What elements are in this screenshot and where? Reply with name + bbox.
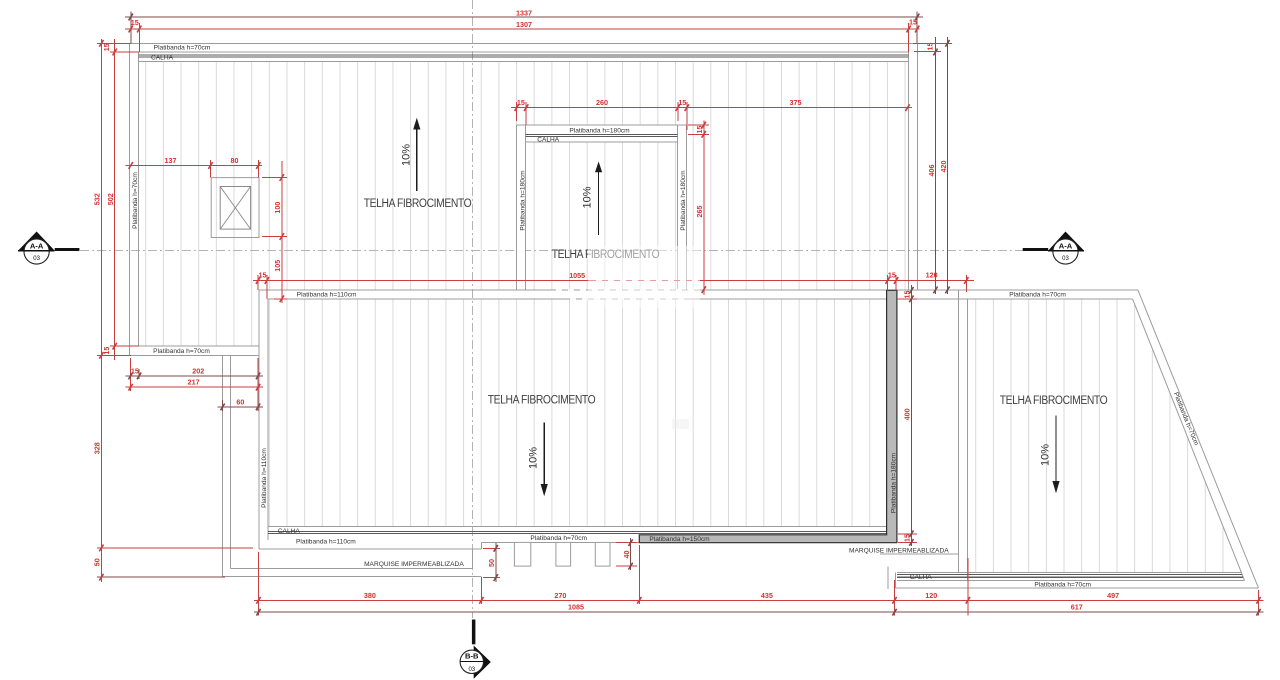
svg-text:40: 40: [622, 551, 631, 559]
svg-text:435: 435: [761, 591, 773, 600]
svg-text:375: 375: [790, 98, 802, 107]
svg-text:400: 400: [903, 408, 912, 420]
svg-text:15: 15: [102, 43, 111, 51]
svg-text:TELHA FIBROCIMENTO: TELHA FIBROCIMENTO: [1000, 395, 1108, 408]
svg-text:TELHA FIBROCIMENTO: TELHA FIBROCIMENTO: [488, 394, 596, 407]
svg-text:80: 80: [231, 156, 239, 165]
svg-text:03: 03: [33, 256, 40, 262]
svg-text:10%: 10%: [528, 447, 540, 469]
svg-text:10%: 10%: [1039, 444, 1051, 466]
svg-text:TELHA FIBROCIMENTO: TELHA FIBROCIMENTO: [364, 197, 472, 210]
svg-text:60: 60: [236, 397, 244, 406]
svg-text:328: 328: [93, 442, 102, 454]
svg-text:B-B: B-B: [465, 652, 479, 661]
svg-text:Platibanda h=150cm: Platibanda h=150cm: [649, 536, 710, 543]
svg-text:617: 617: [1071, 602, 1083, 611]
svg-text:10%: 10%: [401, 144, 413, 166]
svg-text:1307: 1307: [516, 20, 532, 29]
svg-text:270: 270: [554, 591, 566, 600]
svg-text:Platibanda h=70cm: Platibanda h=70cm: [530, 535, 587, 542]
svg-text:MARQUISE IMPERMEABLIZADA: MARQUISE IMPERMEABLIZADA: [849, 548, 949, 555]
svg-text:Platibanda h=70cm: Platibanda h=70cm: [153, 348, 210, 355]
svg-text:406: 406: [927, 165, 936, 177]
svg-text:532: 532: [93, 193, 102, 205]
svg-text:Platibanda h=180cm: Platibanda h=180cm: [569, 127, 630, 134]
svg-text:Platibanda h=110cm: Platibanda h=110cm: [261, 448, 268, 508]
svg-text:105: 105: [273, 260, 282, 272]
svg-text:03: 03: [1062, 256, 1069, 262]
svg-text:A-A: A-A: [30, 241, 44, 250]
svg-text:03: 03: [468, 667, 475, 673]
svg-text:202: 202: [192, 366, 204, 375]
svg-text:Platibanda h=110cm: Platibanda h=110cm: [296, 538, 356, 545]
svg-text:260: 260: [596, 98, 608, 107]
svg-text:Platibanda h=110cm: Platibanda h=110cm: [297, 292, 357, 299]
svg-text:1337: 1337: [516, 8, 532, 17]
svg-text:CALHA: CALHA: [278, 528, 301, 535]
svg-text:A-A: A-A: [1059, 241, 1073, 250]
svg-text:420: 420: [939, 161, 948, 173]
svg-text:120: 120: [925, 591, 937, 600]
svg-text:Platibanda h=70cm: Platibanda h=70cm: [154, 44, 211, 51]
svg-text:502: 502: [106, 193, 115, 205]
svg-text:50: 50: [487, 559, 496, 567]
svg-text:Platibanda h=180cm: Platibanda h=180cm: [680, 170, 687, 231]
svg-text:10%: 10%: [582, 186, 594, 208]
svg-text:50: 50: [93, 558, 102, 566]
svg-text:Platibanda h=180cm: Platibanda h=180cm: [891, 452, 898, 513]
svg-text:CALHA: CALHA: [151, 55, 174, 62]
svg-text:CALHA: CALHA: [537, 136, 560, 143]
svg-text:100: 100: [273, 202, 282, 214]
svg-text:265: 265: [695, 206, 704, 218]
svg-text:380: 380: [364, 591, 376, 600]
svg-text:Platibanda h=70cm: Platibanda h=70cm: [132, 172, 139, 229]
svg-text:217: 217: [188, 378, 200, 387]
svg-text:Platibanda h=180cm: Platibanda h=180cm: [519, 170, 526, 231]
svg-text:137: 137: [165, 156, 177, 165]
svg-text:Platibanda h=70cm: Platibanda h=70cm: [1034, 582, 1091, 589]
svg-text:1055: 1055: [569, 271, 585, 280]
svg-text:CALHA: CALHA: [910, 574, 933, 581]
svg-text:MARQUISE IMPERMEABLIZADA: MARQUISE IMPERMEABLIZADA: [364, 561, 464, 568]
svg-text:1085: 1085: [568, 602, 584, 611]
svg-text:497: 497: [1107, 591, 1119, 600]
svg-text:Platibanda h=70cm: Platibanda h=70cm: [1009, 292, 1066, 299]
